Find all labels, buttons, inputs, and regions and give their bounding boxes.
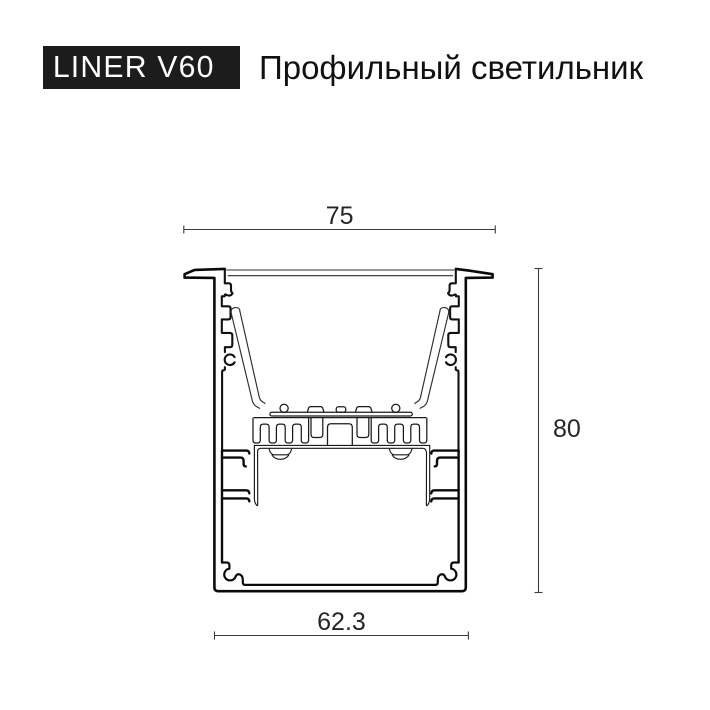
svg-text:62.3: 62.3 bbox=[317, 608, 366, 636]
svg-text:75: 75 bbox=[326, 202, 354, 230]
svg-text:80: 80 bbox=[553, 415, 581, 443]
